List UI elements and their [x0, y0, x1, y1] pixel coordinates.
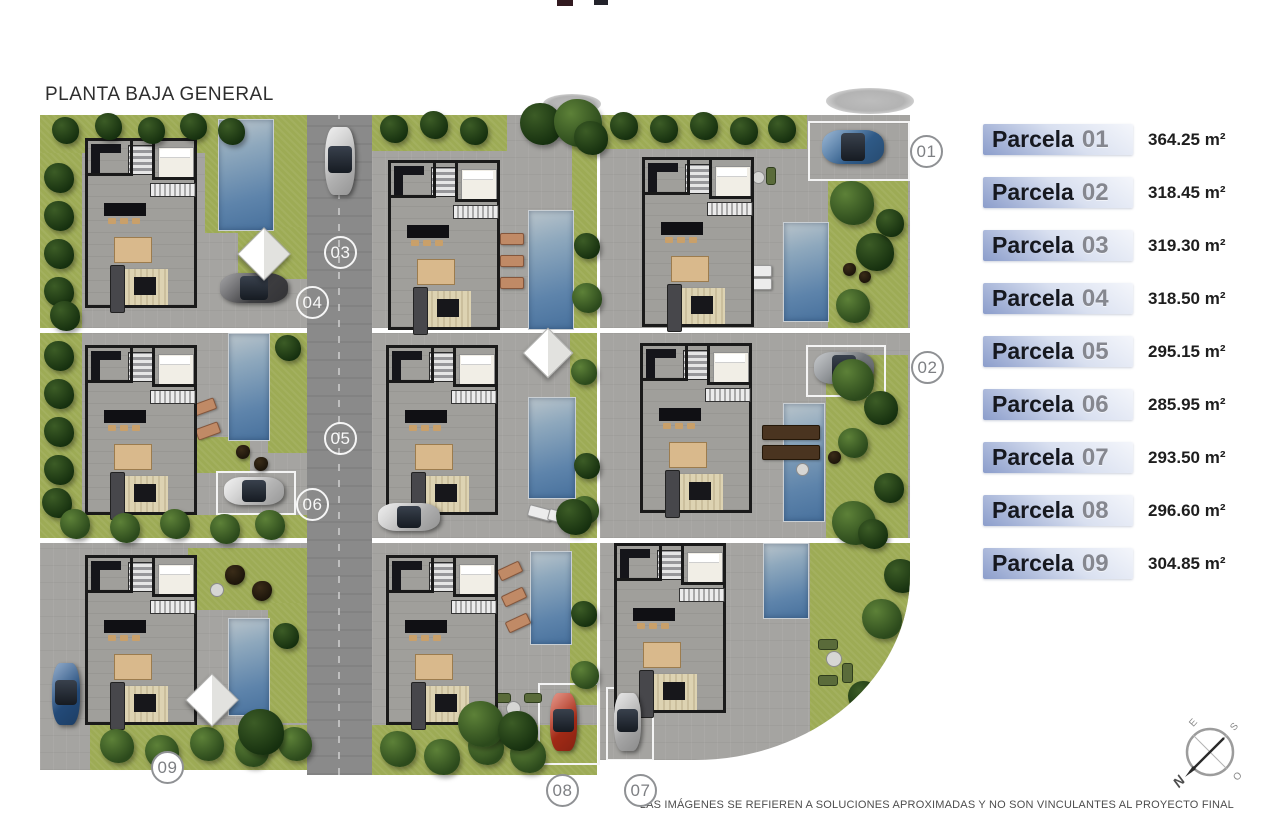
kitchen-counter [392, 561, 422, 570]
parcel-area: 296.60 m² [1148, 501, 1226, 521]
inner-wall [391, 195, 435, 198]
kitchen-counter [91, 153, 100, 175]
garden-bench [842, 663, 853, 683]
villa-05 [386, 345, 498, 515]
compass-e: E [1187, 717, 1200, 730]
tree-icon [730, 117, 758, 145]
sun-lounger [500, 233, 524, 245]
kitchen-counter [91, 360, 100, 382]
car-icon [378, 503, 440, 531]
inner-wall [709, 196, 754, 199]
bush-icon [254, 457, 268, 471]
bar-stool [433, 635, 441, 641]
bar-stool [132, 218, 140, 224]
bar-stool [665, 237, 673, 243]
car-cabin [617, 709, 638, 732]
legend-bar: Parcela06 [983, 389, 1133, 420]
tree-icon [44, 163, 74, 193]
compass-rose-icon: N E S O [1168, 712, 1250, 794]
bar-stool [677, 237, 685, 243]
tree-icon [571, 359, 597, 385]
cropped-image-fragment [594, 0, 608, 5]
tree-icon [864, 391, 898, 425]
inner-wall [130, 141, 133, 176]
car-icon [224, 477, 284, 505]
parcel-04 [40, 115, 307, 328]
inner-wall [433, 163, 436, 198]
coffee-table [134, 694, 156, 712]
legend-bar: Parcela08 [983, 495, 1133, 526]
legend-bar: Parcela05 [983, 336, 1133, 367]
tree-icon [190, 727, 224, 761]
garden-table [826, 651, 842, 667]
tree-icon [876, 209, 904, 237]
bed-pillow [463, 171, 493, 180]
inner-wall [643, 378, 687, 381]
parcel-number: 06 [1082, 391, 1109, 419]
kitchen-island [104, 620, 146, 633]
parcel-number: 07 [1082, 444, 1109, 472]
legend-row-04: Parcela04318.50 m² [983, 283, 1243, 314]
disclaimer-text: LAS IMÁGENES SE REFIEREN A SOLUCIONES AP… [640, 799, 1234, 811]
kitchen-counter [392, 570, 401, 592]
tree-icon [610, 112, 638, 140]
bar-stool [675, 423, 683, 429]
kitchen-island [405, 620, 447, 633]
bar-stool [421, 635, 429, 641]
inner-wall [709, 160, 712, 198]
tree-icon [44, 201, 74, 231]
marker-03: 03 [324, 236, 357, 269]
dining-table [643, 642, 681, 668]
sofa [667, 284, 682, 332]
sun-lounger [505, 612, 532, 633]
parcel-label: Parcela [992, 497, 1074, 524]
coffee-table [134, 277, 156, 295]
parcel-area: 318.50 m² [1148, 289, 1226, 309]
tree-icon [180, 113, 207, 140]
bar-stool [637, 623, 645, 629]
inner-wall [685, 346, 688, 381]
bar-stool [409, 425, 417, 431]
inner-wall [389, 590, 433, 593]
inner-wall [659, 546, 662, 581]
swimming-pool [530, 551, 572, 645]
villa-07 [614, 543, 726, 713]
car-cabin [242, 480, 266, 502]
inner-wall [130, 558, 133, 593]
bed-pillow [715, 354, 745, 363]
bar-stool [409, 635, 417, 641]
tree-icon [848, 681, 880, 713]
bar-stool [433, 425, 441, 431]
inner-wall [453, 384, 498, 387]
wardrobe [150, 183, 196, 197]
compass-o: O [1231, 770, 1245, 783]
wardrobe [453, 205, 499, 219]
swimming-pool [763, 543, 809, 619]
tree-icon [830, 181, 874, 225]
parcel-02 [600, 333, 910, 538]
parcel-number: 02 [1082, 179, 1109, 207]
legend-row-07: Parcela07293.50 m² [983, 442, 1243, 473]
coffee-table [663, 682, 685, 700]
kitchen-counter [91, 144, 121, 153]
garden-table [796, 463, 809, 476]
tree-icon [574, 121, 608, 155]
marker-01: 01 [910, 135, 943, 168]
tree-icon [52, 117, 79, 144]
bed-pillow [160, 356, 190, 365]
parcel-label: Parcela [992, 285, 1074, 312]
tree-icon [424, 739, 460, 775]
villa-03 [388, 160, 500, 330]
swimming-pool [528, 210, 574, 330]
car-cabin [328, 146, 352, 173]
tree-icon [498, 711, 538, 751]
bar-stool [689, 237, 697, 243]
dining-table [114, 654, 152, 680]
tree-icon [874, 473, 904, 503]
kitchen-counter [394, 175, 403, 197]
bed-pillow [689, 554, 719, 563]
wardrobe [150, 390, 196, 404]
compass-n: N [1169, 771, 1188, 790]
tree-icon [858, 519, 888, 549]
bed-pillow [461, 356, 491, 365]
bed-pillow [160, 149, 190, 158]
tree-icon [110, 513, 140, 543]
bar-stool [435, 240, 443, 246]
wardrobe [707, 202, 753, 216]
car-icon [220, 273, 288, 303]
wardrobe [150, 600, 196, 614]
kitchen-island [407, 225, 449, 238]
swimming-pool [228, 333, 270, 441]
sun-lounger [497, 560, 524, 581]
tree-icon [138, 117, 165, 144]
kitchen-counter [392, 360, 401, 382]
bed-pillow [717, 168, 747, 177]
car-icon [822, 130, 884, 164]
car-icon [52, 663, 80, 725]
parcel-label: Parcela [992, 338, 1074, 365]
tree-icon [650, 115, 678, 143]
tree-icon [796, 735, 826, 760]
parcel-area: 293.50 m² [1148, 448, 1226, 468]
parcel-03 [372, 115, 597, 328]
coffee-table [435, 484, 457, 502]
inner-wall [88, 380, 132, 383]
parcel-label: Parcela [992, 550, 1074, 577]
tree-icon [862, 599, 902, 639]
tree-icon [44, 239, 74, 269]
bar-stool [108, 425, 116, 431]
parcel-area: 295.15 m² [1148, 342, 1226, 362]
car-icon [614, 693, 641, 751]
sun-lounger [762, 425, 820, 440]
inner-wall [389, 380, 433, 383]
tree-icon [838, 428, 868, 458]
car-cabin [841, 133, 866, 161]
kitchen-counter [646, 358, 655, 380]
inner-wall [152, 558, 155, 596]
sofa [665, 470, 680, 518]
parcel-08 [372, 543, 597, 775]
legend-row-02: Parcela02318.45 m² [983, 177, 1243, 208]
legend-bar: Parcela04 [983, 283, 1133, 314]
inner-wall [152, 348, 155, 386]
bar-stool [421, 425, 429, 431]
parcel-area: 285.95 m² [1148, 395, 1226, 415]
tree-icon [574, 453, 600, 479]
kitchen-counter [394, 166, 424, 175]
parcel-legend: Parcela01364.25 m²Parcela02318.45 m²Parc… [983, 124, 1243, 579]
tree-icon [238, 709, 284, 755]
parcel-number: 01 [1082, 126, 1109, 154]
inner-wall [707, 346, 710, 384]
legend-bar: Parcela07 [983, 442, 1133, 473]
legend-row-05: Parcela05295.15 m² [983, 336, 1243, 367]
car-icon [325, 127, 355, 195]
inner-wall [130, 348, 133, 383]
sofa [110, 265, 125, 313]
dining-table [114, 444, 152, 470]
bar-stool [120, 425, 128, 431]
tree-icon [44, 417, 74, 447]
lawn [188, 548, 307, 610]
kitchen-island [633, 608, 675, 621]
kitchen-counter [91, 561, 121, 570]
coffee-table [134, 484, 156, 502]
kitchen-counter [620, 558, 629, 580]
sofa [411, 682, 426, 730]
inner-wall [455, 163, 458, 201]
kitchen-counter [392, 351, 422, 360]
legend-row-08: Parcela08296.60 m² [983, 495, 1243, 526]
legend-row-01: Parcela01364.25 m² [983, 124, 1243, 155]
legend-row-03: Parcela03319.30 m² [983, 230, 1243, 261]
inner-wall [645, 192, 689, 195]
inner-wall [681, 582, 726, 585]
tree-icon [836, 289, 870, 323]
sun-lounger [500, 277, 524, 289]
inner-wall [431, 558, 434, 593]
legend-row-09: Parcela09304.85 m² [983, 548, 1243, 579]
masterplan [40, 115, 960, 777]
legend-bar: Parcela03 [983, 230, 1133, 261]
tree-icon [571, 661, 599, 689]
parcel-number: 09 [1082, 550, 1109, 578]
wardrobe [705, 388, 751, 402]
villa-01 [642, 157, 754, 327]
tree-icon [210, 514, 240, 544]
parcel-label: Parcela [992, 179, 1074, 206]
tree-icon [60, 509, 90, 539]
garden-bench [818, 675, 838, 686]
inner-wall [152, 141, 155, 179]
tree-icon [572, 283, 602, 313]
bar-stool [687, 423, 695, 429]
tree-icon [556, 499, 592, 535]
site-plan-sheet: PLANTA BAJA GENERAL Parcela01364.25 m²Pa… [0, 0, 1280, 838]
villa-06 [85, 345, 197, 515]
tree-icon [255, 510, 285, 540]
tree-icon [218, 118, 245, 145]
tree-icon [50, 301, 80, 331]
villa-08 [386, 555, 498, 725]
tree-icon [160, 509, 190, 539]
kitchen-counter [648, 163, 678, 172]
tree-icon [458, 701, 504, 747]
bar-stool [120, 635, 128, 641]
wardrobe [679, 588, 725, 602]
parcel-09 [40, 543, 307, 770]
wardrobe [451, 600, 497, 614]
parcel-number: 04 [1082, 285, 1109, 313]
parcel-label: Parcela [992, 391, 1074, 418]
parcel-label: Parcela [992, 126, 1074, 153]
bar-stool [120, 218, 128, 224]
lawn [268, 603, 307, 723]
cropped-image-fragment [557, 0, 573, 6]
marker-08: 08 [546, 774, 579, 807]
coffee-table [689, 482, 711, 500]
kitchen-island [661, 222, 703, 235]
parcel-07 [600, 543, 910, 760]
sun-lounger [501, 586, 528, 607]
tree-icon [275, 335, 301, 361]
sofa [413, 287, 428, 335]
inner-wall [152, 177, 197, 180]
bar-stool [108, 218, 116, 224]
inner-wall [152, 594, 197, 597]
dining-table [415, 444, 453, 470]
legend-bar: Parcela01 [983, 124, 1133, 155]
tree-icon [380, 731, 416, 767]
parcel-06 [40, 333, 307, 538]
tree-icon [95, 113, 122, 140]
tree-icon [836, 721, 872, 757]
inner-wall [453, 558, 456, 596]
legend-bar: Parcela09 [983, 548, 1133, 579]
sun-lounger [500, 255, 524, 267]
tree-icon [574, 233, 600, 259]
tree-shadow-blob [826, 88, 914, 114]
tree-icon [768, 115, 796, 143]
tree-icon [380, 115, 408, 143]
parcel-label: Parcela [992, 232, 1074, 259]
kitchen-island [405, 410, 447, 423]
bar-stool [132, 635, 140, 641]
bed-pillow [461, 566, 491, 575]
tree-icon [44, 455, 74, 485]
tree-icon [273, 623, 299, 649]
parcel-05 [372, 333, 597, 538]
bar-stool [649, 623, 657, 629]
kitchen-island [104, 410, 146, 423]
parcel-label: Parcela [992, 444, 1074, 471]
kitchen-counter [91, 351, 121, 360]
dining-table [415, 654, 453, 680]
bar-stool [132, 425, 140, 431]
garden-bench [766, 167, 776, 185]
tree-icon [460, 117, 488, 145]
parcel-number: 05 [1082, 338, 1109, 366]
bar-stool [411, 240, 419, 246]
bed-pillow [160, 566, 190, 575]
marker-09: 09 [151, 751, 184, 784]
parcel-area: 318.45 m² [1148, 183, 1226, 203]
dining-table [669, 442, 707, 468]
tree-icon [856, 233, 894, 271]
bar-stool [423, 240, 431, 246]
tree-icon [44, 379, 74, 409]
car-cabin [553, 709, 574, 732]
legend-row-06: Parcela06285.95 m² [983, 389, 1243, 420]
bar-stool [108, 635, 116, 641]
garden-bench [524, 693, 542, 703]
wardrobe [451, 390, 497, 404]
inner-wall [707, 382, 752, 385]
car-icon [550, 693, 577, 751]
inner-wall [431, 348, 434, 383]
sun-lounger [762, 445, 820, 460]
sofa [110, 682, 125, 730]
marker-05: 05 [324, 422, 357, 455]
tree-icon [44, 341, 74, 371]
parcel-number: 03 [1082, 232, 1109, 260]
swimming-pool [783, 222, 829, 322]
garden-table [210, 583, 224, 597]
tree-icon [571, 601, 597, 627]
kitchen-counter [620, 549, 650, 558]
parcel-01 [600, 115, 910, 328]
compass-s: S [1228, 721, 1241, 734]
coffee-table [437, 299, 459, 317]
marker-07: 07 [624, 774, 657, 807]
inner-wall [455, 199, 500, 202]
kitchen-counter [648, 172, 657, 194]
kitchen-island [659, 408, 701, 421]
coffee-table [435, 694, 457, 712]
swimming-pool [528, 397, 576, 499]
marker-06: 06 [296, 488, 329, 521]
dining-table [417, 259, 455, 285]
parcel-area: 364.25 m² [1148, 130, 1226, 150]
villa-04 [85, 138, 197, 308]
garden-bench [818, 639, 838, 650]
dining-table [114, 237, 152, 263]
legend-bar: Parcela02 [983, 177, 1133, 208]
bar-stool [661, 623, 669, 629]
inner-wall [453, 348, 456, 386]
tree-icon [420, 111, 448, 139]
tree-icon [690, 112, 718, 140]
parcel-number: 08 [1082, 497, 1109, 525]
inner-wall [88, 173, 132, 176]
marker-04: 04 [296, 286, 329, 319]
inner-wall [681, 546, 684, 584]
inner-wall [687, 160, 690, 195]
car-cabin [397, 506, 422, 528]
inner-wall [152, 384, 197, 387]
parcel-area: 304.85 m² [1148, 554, 1226, 574]
coffee-table [691, 296, 713, 314]
villa-02 [640, 343, 752, 513]
bar-stool [663, 423, 671, 429]
inner-wall [617, 578, 661, 581]
